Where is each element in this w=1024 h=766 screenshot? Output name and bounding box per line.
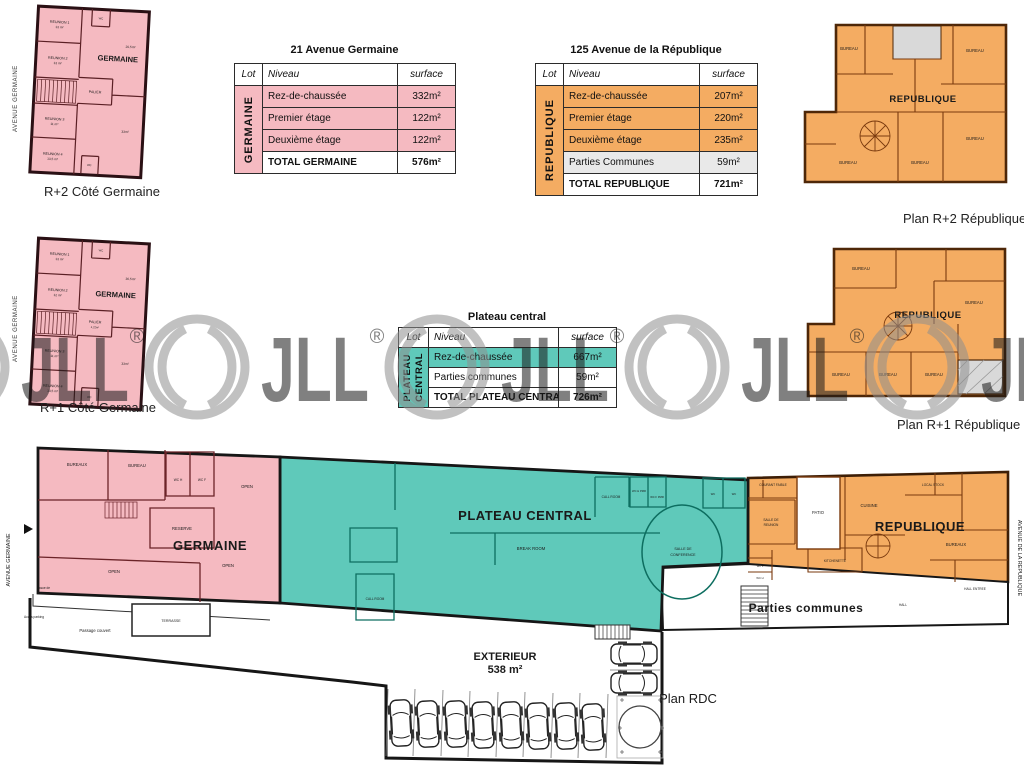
- plan-r1-germaine: REUNION 1 13 m² REUNION 2 12 m² REUNION …: [25, 235, 156, 417]
- room-area: 33m²: [121, 130, 128, 134]
- room-label: WC H PMR: [632, 489, 646, 493]
- terrasse-label: TERRASSE: [161, 619, 181, 623]
- room-label: BUREAU: [840, 46, 857, 51]
- room-label: BUREAU: [879, 372, 896, 377]
- table-germaine: Lot Niveau surface GERMAINE Rez-de-chaus…: [234, 63, 456, 174]
- row-niveau: Rez-de-chaussée: [429, 348, 559, 368]
- header-lot: Lot: [399, 328, 429, 348]
- arrow-icon: [24, 524, 33, 534]
- row-surface: 220m²: [700, 108, 758, 130]
- room-label: WC: [99, 16, 104, 20]
- spiral-stair: [860, 121, 890, 151]
- table-republique: Lot Niveau surface REPUBLIQUE Rez-de-cha…: [535, 63, 758, 196]
- room-label: WC F PMR: [650, 495, 664, 499]
- row-surface: 667m²: [559, 348, 617, 368]
- room-label: SALLE DE: [763, 518, 778, 522]
- exterieur-area: 538 m²: [488, 664, 523, 676]
- zone-label-republique: REPUBLIQUE: [875, 519, 965, 534]
- header-lot: Lot: [536, 64, 564, 86]
- lot-label-cell: REPUBLIQUE: [536, 86, 564, 196]
- room-label: WC: [732, 492, 737, 496]
- row-niveau: Parties communes: [429, 368, 559, 388]
- floorplan-sheet: { "watermark": {"text": "JLL", "reg": "®…: [0, 0, 1024, 766]
- room-label: KITCHENETTE: [824, 559, 846, 563]
- room-label: REUNION: [764, 523, 779, 527]
- room-label: LOCAL STOCK: [922, 483, 945, 487]
- street-label-avenue-germaine: AVENUE GERMAINE: [13, 65, 19, 132]
- row-niveau: Rez-de-chaussée: [564, 86, 700, 108]
- room-label: PALIER: [89, 320, 102, 325]
- header-niveau: Niveau: [263, 64, 398, 86]
- row-surface: 59m²: [700, 152, 758, 174]
- plan-rdc: BUREAUX BUREAU WC H WC F RESERVE OPEN OP…: [0, 440, 1024, 766]
- zone-germaine: [38, 448, 280, 603]
- header-niveau: Niveau: [429, 328, 559, 348]
- room-label: WC: [87, 395, 92, 399]
- room-label: OPEN: [108, 569, 120, 574]
- header-surface: surface: [559, 328, 617, 348]
- row-surface: 59m²: [559, 368, 617, 388]
- row-surface: 235m²: [700, 130, 758, 152]
- room-area: 36,5m²: [125, 277, 135, 282]
- row-surface: 332m²: [398, 86, 456, 108]
- row-niveau: Premier étage: [564, 108, 700, 130]
- stock-room: [958, 360, 1003, 394]
- room-label: WC: [99, 248, 104, 252]
- room-label: BREAK ROOM: [517, 546, 546, 551]
- room-area: 13,5 m²: [47, 389, 58, 394]
- total-label: TOTAL REPUBLIQUE: [564, 174, 700, 196]
- room-area: 13,5 m²: [47, 157, 58, 162]
- row-niveau: Parties Communes: [564, 152, 700, 174]
- room-label: HALL ENTREE: [964, 587, 986, 591]
- room-label: WC: [711, 492, 716, 496]
- room-label: BUREAU: [911, 160, 928, 165]
- room-label: BUREAUX: [946, 542, 966, 547]
- room-label: BUREAU: [832, 372, 849, 377]
- spiral-stair: [866, 534, 890, 558]
- room-label: BUREAU: [852, 266, 869, 271]
- zone-label-plateau-central: PLATEAU CENTRAL: [458, 508, 592, 523]
- lot-label-line1: PLATEAU: [402, 354, 413, 402]
- room-area: 13 m²: [53, 61, 61, 65]
- room-label: CONFERENCE: [670, 553, 696, 557]
- room-label: CALL ROOM: [366, 597, 385, 601]
- issue-secours-label: Issue de: [38, 586, 50, 590]
- row-surface: 122m²: [398, 130, 456, 152]
- table-title-germaine: 21 Avenue Germaine: [234, 44, 455, 56]
- room-label: BUREAUX: [67, 462, 87, 467]
- table-title-plateau: Plateau central: [398, 311, 616, 323]
- plan-caption: Plan R+2 République: [903, 211, 1024, 226]
- passage-couvert-label: Passage couvert: [79, 628, 111, 633]
- room-label: CUISINE: [861, 503, 878, 508]
- exterior-stairs: [595, 625, 630, 639]
- room-label: WC H: [174, 478, 183, 482]
- total-label: TOTAL GERMAINE: [263, 152, 398, 174]
- room-label: BUREAU: [966, 136, 983, 141]
- room-area: 12 m²: [53, 293, 61, 297]
- room-label: WC F: [198, 478, 206, 482]
- total-value: 726m²: [559, 388, 617, 408]
- row-niveau: Rez-de-chaussée: [263, 86, 398, 108]
- room-label: WC F: [757, 564, 764, 568]
- room-label: PATIO: [812, 510, 825, 515]
- lot-label-line2: CENTRAL: [414, 353, 425, 402]
- row-niveau: Deuxième étage: [263, 130, 398, 152]
- header-surface: surface: [700, 64, 758, 86]
- exterieur-label: EXTERIEUR: [474, 651, 537, 663]
- plan-caption: R+2 Côté Germaine: [44, 184, 160, 199]
- lot-label: REPUBLIQUE: [544, 99, 556, 181]
- zone-label-republique: REPUBLIQUE: [889, 94, 956, 105]
- svg-text:AVENUE GERMAINE: AVENUE GERMAINE: [6, 533, 12, 586]
- zone-label-republique: REPUBLIQUE: [894, 310, 961, 321]
- lot-label: GERMAINE: [243, 96, 255, 163]
- room-label: WC H: [756, 576, 763, 580]
- room-label: COURANT FAIBLE: [759, 483, 786, 487]
- row-surface: 207m²: [700, 86, 758, 108]
- room-area: 4,22m²: [91, 325, 100, 329]
- room-label: BUREAU: [925, 372, 942, 377]
- room-area: 11 m²: [50, 122, 58, 126]
- table-plateau: Lot Niveau surface PLATEAU CENTRAL Rez-d…: [398, 327, 617, 408]
- total-label: TOTAL PLATEAU CENTRAL: [429, 388, 559, 408]
- header-surface: surface: [398, 64, 456, 86]
- issue-secours-label: secours: [38, 591, 50, 595]
- header-niveau: Niveau: [564, 64, 700, 86]
- street-label-avenue-germaine: AVENUE GERMAINE: [6, 524, 33, 587]
- room-label: HALL: [899, 603, 907, 607]
- room-area: 33m²: [121, 362, 128, 366]
- room-label: BUREAU: [966, 48, 983, 53]
- room-label: PALIER: [89, 90, 102, 95]
- room-label: CALL ROOM: [602, 495, 621, 499]
- street-label-avenue-germaine: AVENUE GERMAINE: [13, 295, 19, 362]
- plan-r2-germaine: REUNION 1 13 m² REUNION 2 13 m² REUNION …: [25, 3, 156, 185]
- header-lot: Lot: [235, 64, 263, 86]
- row-surface: 122m²: [398, 108, 456, 130]
- room-label: WC: [87, 163, 92, 167]
- tree-plot: [617, 696, 664, 758]
- plan-r2-republique: BUREAU BUREAU BUREAU BUREAU BUREAU REPUB…: [803, 22, 1013, 208]
- zone-label-germaine: GERMAINE: [173, 538, 247, 553]
- total-value: 576m²: [398, 152, 456, 174]
- table-title-republique: 125 Avenue de la République: [535, 44, 757, 56]
- plan-caption: Plan R+1 République: [897, 417, 1020, 432]
- room-area: 11 m²: [50, 354, 58, 358]
- room-label: BUREAU: [128, 463, 145, 468]
- room-label: RESERVE: [172, 526, 192, 531]
- room-label: SALLE DE: [674, 547, 692, 551]
- street-label-avenue-republique: AVENUE DE LA REPUBLIQUE: [1016, 520, 1022, 597]
- plan-rdc-caption: Plan RDC: [659, 691, 717, 706]
- lot-label-cell: GERMAINE: [235, 86, 263, 174]
- total-value: 721m²: [700, 174, 758, 196]
- parties-communes-label: Parties communes: [749, 601, 864, 615]
- row-niveau: Premier étage: [263, 108, 398, 130]
- room-label: BUREAU: [965, 300, 982, 305]
- lot-label-cell: PLATEAU CENTRAL: [399, 348, 429, 408]
- acces-parking-label: Accès parking: [24, 615, 44, 619]
- plan-r1-republique: BUREAU BUREAU BUREAU BUREAU BUREAU REPUB…: [806, 246, 1012, 424]
- room-label: OPEN: [241, 484, 253, 489]
- room-area: 13 m²: [55, 257, 63, 261]
- roof-light-well: [893, 26, 941, 59]
- plan-caption: R+1 Côté Germaine: [40, 400, 156, 415]
- room-label: BUREAU: [839, 160, 856, 165]
- room-area: 13 m²: [55, 25, 63, 29]
- row-niveau: Deuxième étage: [564, 130, 700, 152]
- room-area: 20,5m²: [125, 45, 135, 50]
- room-label: OPEN: [222, 563, 234, 568]
